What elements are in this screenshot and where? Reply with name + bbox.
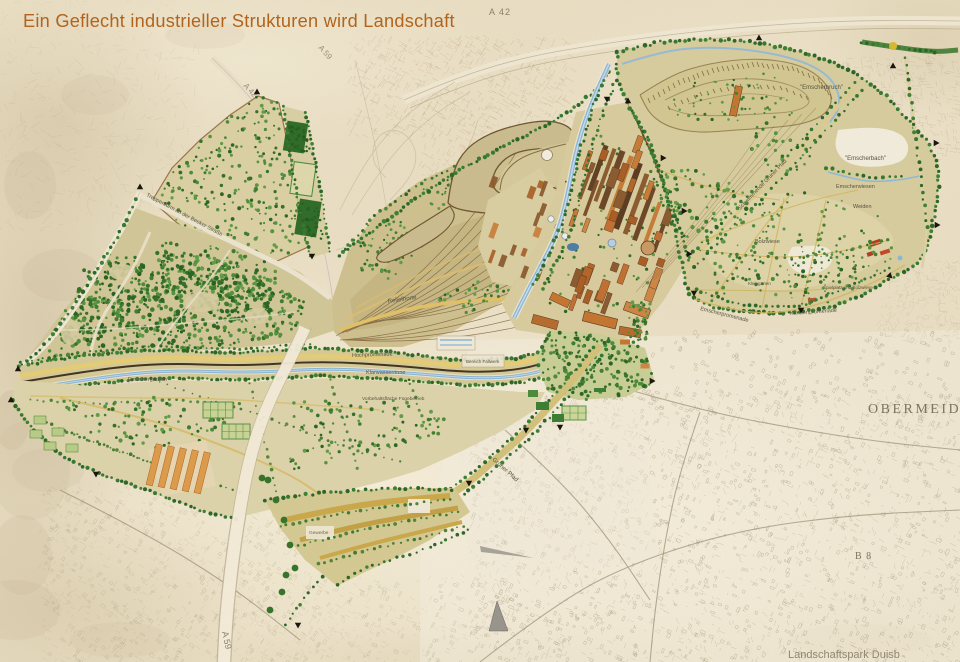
svg-text:Ein Geflecht industrieller Str: Ein Geflecht industrieller Strukturen wi…	[23, 11, 455, 31]
